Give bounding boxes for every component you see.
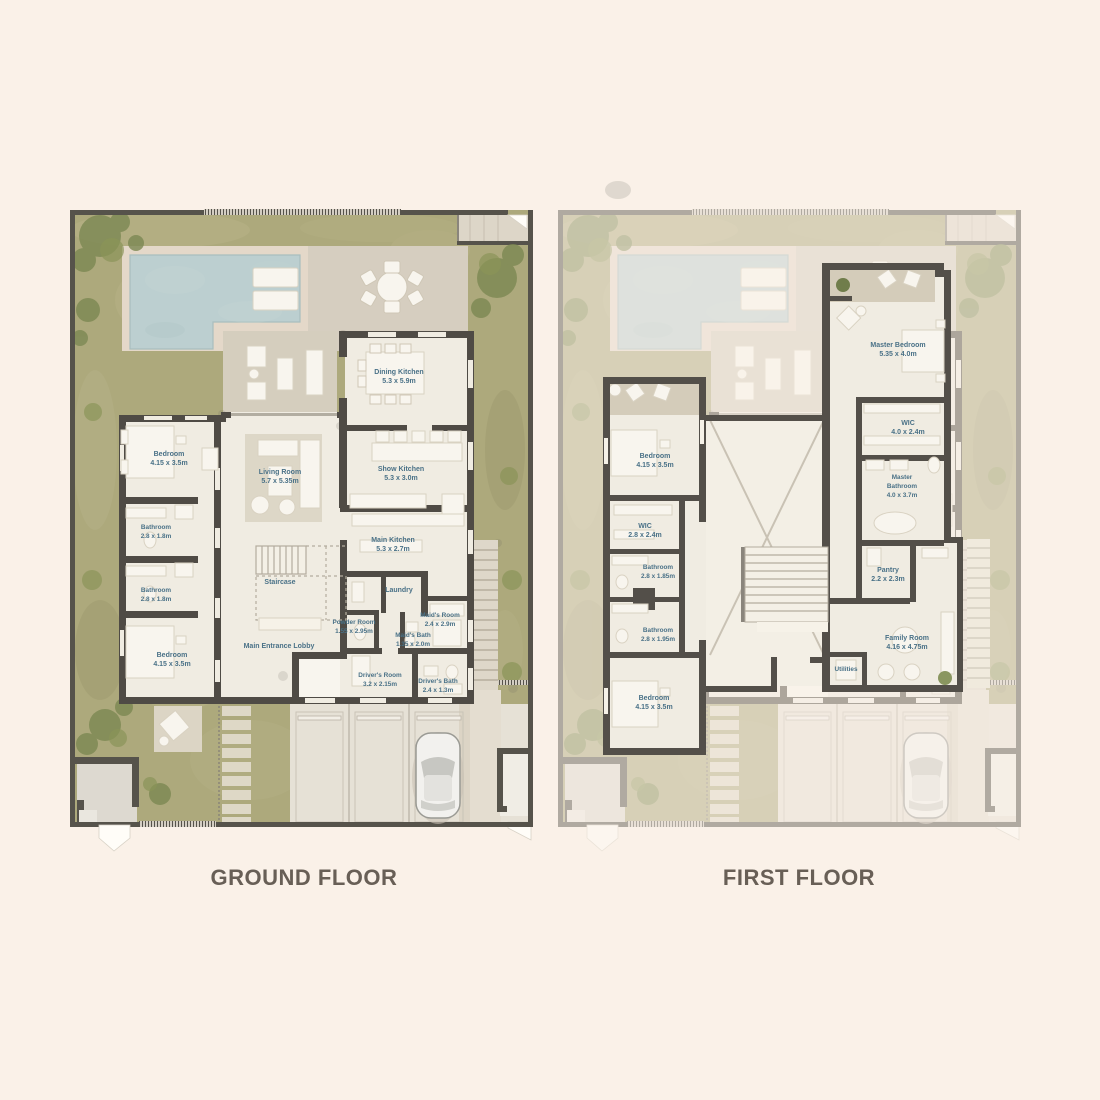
svg-text:Master: Master: [892, 474, 913, 481]
svg-text:WIC: WIC: [638, 523, 652, 530]
svg-text:Bathroom: Bathroom: [643, 627, 673, 634]
svg-text:Utilities: Utilities: [834, 666, 858, 673]
svg-text:2.8 x 2.4m: 2.8 x 2.4m: [628, 532, 661, 539]
svg-text:Bathroom: Bathroom: [643, 564, 673, 571]
svg-text:2.4 x 2.9m: 2.4 x 2.9m: [425, 621, 456, 628]
svg-text:Bathroom: Bathroom: [887, 483, 917, 490]
svg-text:4.0 x 2.4m: 4.0 x 2.4m: [891, 429, 924, 436]
svg-text:Bathroom: Bathroom: [141, 524, 171, 531]
svg-text:5.7 x 5.35m: 5.7 x 5.35m: [261, 478, 298, 485]
svg-text:Living Room: Living Room: [259, 469, 301, 476]
svg-text:Dining Kitchen: Dining Kitchen: [374, 369, 423, 376]
svg-text:Staircase: Staircase: [264, 579, 295, 586]
svg-text:4.15 x 3.5m: 4.15 x 3.5m: [635, 704, 672, 711]
svg-text:4.15 x 3.5m: 4.15 x 3.5m: [150, 460, 187, 467]
svg-text:Bedroom: Bedroom: [157, 652, 188, 659]
svg-text:2.2 x 2.3m: 2.2 x 2.3m: [871, 576, 904, 583]
svg-text:2.4 x 1.3m: 2.4 x 1.3m: [423, 687, 454, 694]
svg-text:Main Kitchen: Main Kitchen: [371, 537, 415, 544]
svg-text:5.3 x 5.9m: 5.3 x 5.9m: [382, 378, 415, 385]
svg-text:Master Bedroom: Master Bedroom: [870, 342, 925, 349]
svg-text:2.8 x 1.8m: 2.8 x 1.8m: [141, 533, 172, 540]
svg-text:3.2 x 2.15m: 3.2 x 2.15m: [363, 681, 397, 688]
svg-text:Powder Room: Powder Room: [333, 619, 376, 626]
svg-text:WIC: WIC: [901, 420, 915, 427]
svg-text:1.35 x 2.0m: 1.35 x 2.0m: [396, 641, 430, 648]
svg-text:4.15 x 3.5m: 4.15 x 3.5m: [153, 661, 190, 668]
svg-text:2.8 x 1.85m: 2.8 x 1.85m: [641, 573, 675, 580]
svg-text:Driver's Bath: Driver's Bath: [418, 678, 458, 685]
svg-text:5.3 x 3.0m: 5.3 x 3.0m: [384, 475, 417, 482]
svg-text:Driver's Room: Driver's Room: [358, 672, 402, 679]
svg-text:Laundry: Laundry: [385, 587, 413, 594]
svg-text:Show Kitchen: Show Kitchen: [378, 466, 424, 473]
svg-text:4.16 x 4.75m: 4.16 x 4.75m: [886, 644, 927, 651]
svg-text:GROUND FLOOR: GROUND FLOOR: [211, 865, 398, 890]
svg-text:Main Entrance Lobby: Main Entrance Lobby: [244, 643, 315, 650]
svg-text:5.35 x 4.0m: 5.35 x 4.0m: [879, 351, 916, 358]
svg-text:Bedroom: Bedroom: [640, 453, 671, 460]
svg-text:4.15 x 3.5m: 4.15 x 3.5m: [636, 462, 673, 469]
svg-text:Maid's Bath: Maid's Bath: [395, 632, 431, 639]
svg-text:FIRST FLOOR: FIRST FLOOR: [723, 865, 875, 890]
svg-text:Bedroom: Bedroom: [154, 451, 185, 458]
svg-text:Maid's Room: Maid's Room: [420, 612, 460, 619]
svg-text:2.8 x 1.95m: 2.8 x 1.95m: [641, 636, 675, 643]
svg-text:4.0 x 3.7m: 4.0 x 3.7m: [887, 492, 918, 499]
svg-text:1.55 x 2.95m: 1.55 x 2.95m: [335, 628, 373, 635]
svg-text:Bedroom: Bedroom: [639, 695, 670, 702]
svg-text:5.3 x 2.7m: 5.3 x 2.7m: [376, 546, 409, 553]
svg-text:2.8 x 1.8m: 2.8 x 1.8m: [141, 596, 172, 603]
svg-text:Pantry: Pantry: [877, 567, 899, 574]
svg-text:Family Room: Family Room: [885, 635, 929, 642]
svg-text:Bathroom: Bathroom: [141, 587, 171, 594]
